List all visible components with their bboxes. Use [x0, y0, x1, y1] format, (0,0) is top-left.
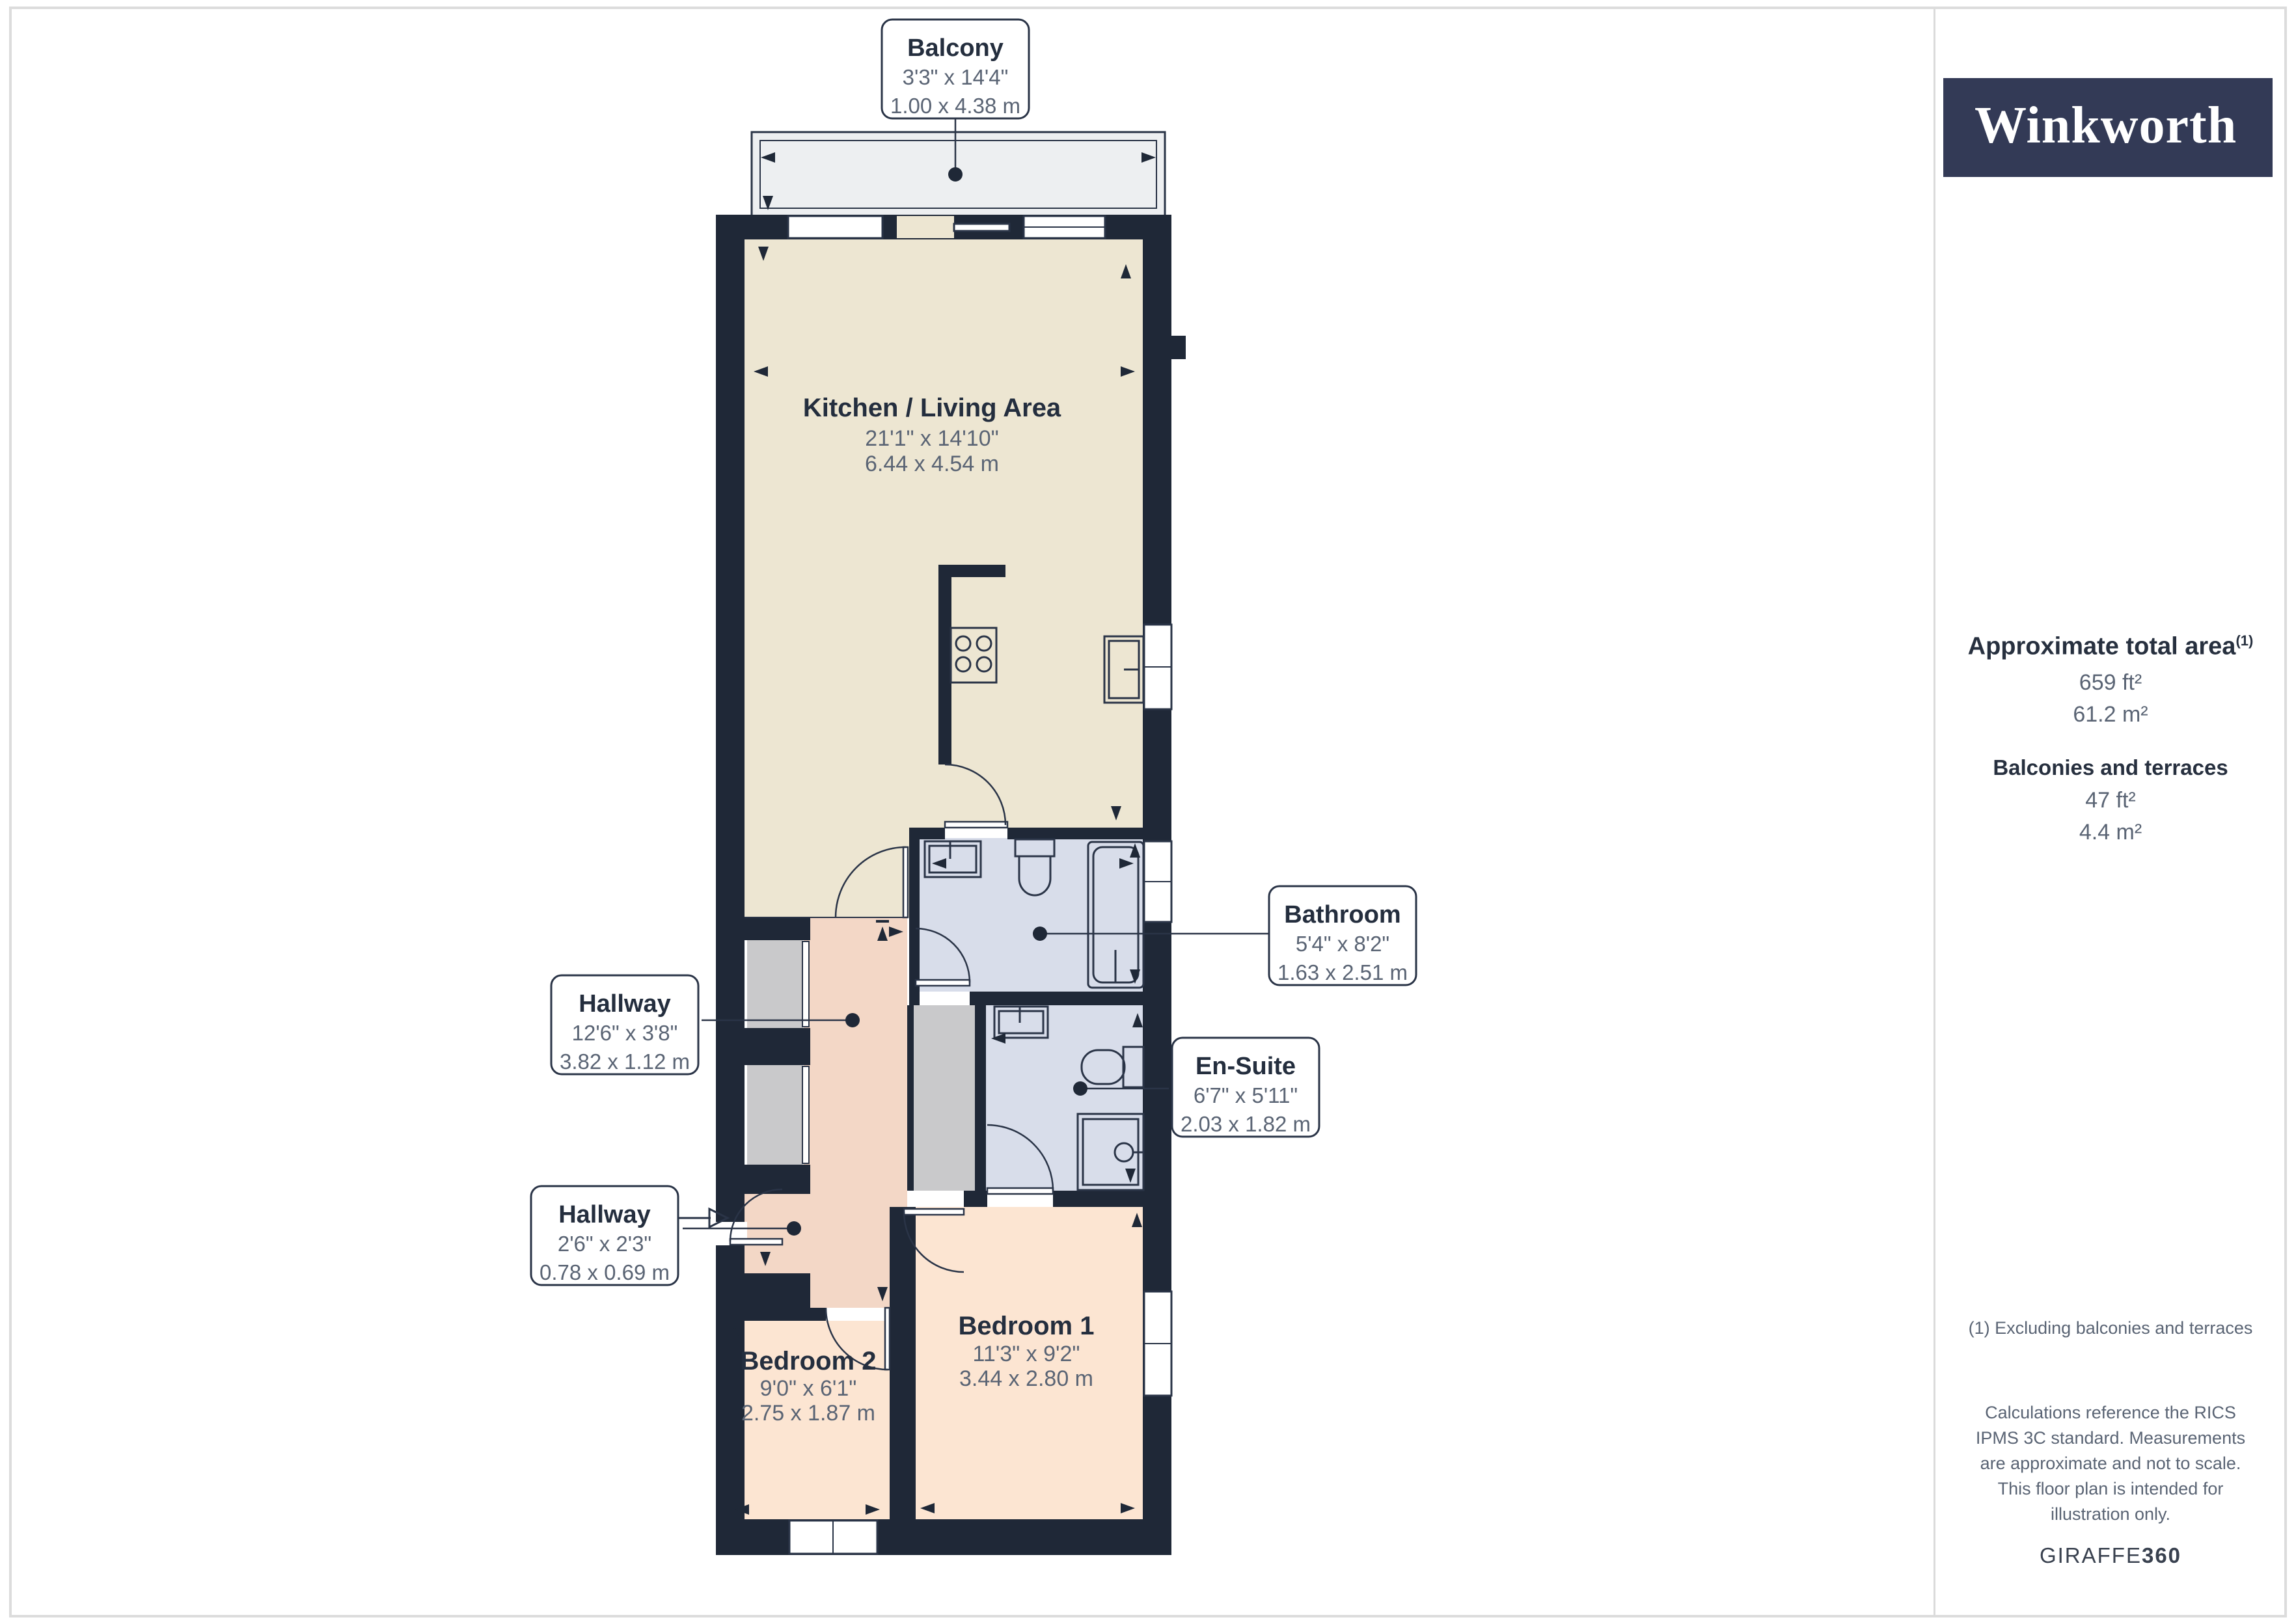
closet-front-1	[802, 941, 809, 1027]
bathroom-callout: Bathroom 5'4" x 8'2" 1.63 x 2.51 m	[1269, 886, 1416, 985]
footnote-marker: (1)	[2235, 632, 2253, 649]
kitchen-window-top-left	[788, 216, 882, 238]
total-area-imperial: 659 ft²	[1934, 670, 2287, 702]
area-summary: Approximate total area(1) 659 ft² 61.2 m…	[1934, 632, 2287, 852]
credit-brand: GIRAFFE	[2040, 1543, 2142, 1567]
balconies-metric: 4.4 m²	[1934, 820, 2287, 852]
svg-text:1.63 x 2.51 m: 1.63 x 2.51 m	[1278, 960, 1408, 984]
svg-text:En-Suite: En-Suite	[1196, 1053, 1296, 1080]
bedroom1-dim-imperial: 11'3" x 9'2"	[972, 1342, 1080, 1366]
bathroom-floor	[920, 838, 1143, 992]
svg-text:3.82 x 1.12 m: 3.82 x 1.12 m	[560, 1049, 690, 1074]
svg-text:12'6" x 3'8": 12'6" x 3'8"	[572, 1021, 678, 1045]
ensuite-callout: En-Suite 6'7" x 5'11" 2.03 x 1.82 m	[1172, 1038, 1319, 1137]
bedroom2-dim-metric: 2.75 x 1.87 m	[741, 1401, 875, 1426]
svg-text:0.78 x 0.69 m: 0.78 x 0.69 m	[540, 1260, 670, 1284]
balconies-imperial: 47 ft²	[1934, 788, 2287, 820]
svg-text:2'6" x 2'3": 2'6" x 2'3"	[558, 1232, 651, 1256]
svg-text:1.00 x 4.38 m: 1.00 x 4.38 m	[890, 94, 1020, 118]
svg-text:Bathroom: Bathroom	[1284, 901, 1401, 928]
total-area-metric: 61.2 m²	[1934, 702, 2287, 734]
logo-text: Winkworth	[1943, 78, 2273, 156]
svg-text:Hallway: Hallway	[579, 990, 671, 1018]
svg-text:3'3" x 14'4": 3'3" x 14'4"	[903, 65, 1009, 89]
closet-front-2	[802, 1066, 809, 1163]
bedroom2-dim-imperial: 9'0" x 6'1"	[760, 1376, 857, 1401]
bedroom1-dim-metric: 3.44 x 2.80 m	[959, 1366, 1093, 1391]
closet-left-2	[747, 1065, 802, 1165]
closet-mid	[914, 1005, 975, 1191]
kitchen-label: Kitchen / Living Area	[803, 394, 1061, 422]
total-area-title: Approximate total area(1)	[1934, 632, 2287, 670]
svg-text:5'4" x 8'2": 5'4" x 8'2"	[1296, 932, 1389, 956]
kitchen-dim-metric: 6.44 x 4.54 m	[865, 452, 999, 476]
bedroom1-label: Bedroom 1	[959, 1312, 1095, 1340]
balcony-slider-opening	[897, 216, 954, 238]
sidebar: Winkworth Approximate total area(1) 659 …	[1934, 0, 2287, 1624]
balcony-callout: Balcony 3'3" x 14'4" 1.00 x 4.38 m	[882, 20, 1029, 118]
excluding-footnote: (1) Excluding balconies and terraces	[1934, 1318, 2287, 1338]
floorplan-page: Kitchen / Living Area 21'1" x 14'10" 6.4…	[0, 0, 2296, 1624]
svg-text:2.03 x 1.82 m: 2.03 x 1.82 m	[1181, 1112, 1311, 1136]
svg-text:Balcony: Balcony	[907, 34, 1004, 62]
giraffe360-credit: GIRAFFE360	[1934, 1543, 2287, 1568]
entry-hallway-callout: Hallway 2'6" x 2'3" 0.78 x 0.69 m	[531, 1186, 678, 1285]
kitchen-dim-imperial: 21'1" x 14'10"	[865, 426, 998, 451]
balconies-title: Balconies and terraces	[1934, 755, 2287, 788]
disclaimer-text: Calculations reference the RICS IPMS 3C …	[1967, 1400, 2254, 1527]
hallway-callout: Hallway 12'6" x 3'8" 3.82 x 1.12 m	[551, 975, 698, 1074]
svg-text:6'7" x 5'11": 6'7" x 5'11"	[1194, 1083, 1298, 1107]
credit-suffix: 360	[2142, 1543, 2181, 1567]
balcony-slider-leaf	[954, 224, 1009, 231]
closet-left-1	[747, 940, 802, 1028]
svg-text:Hallway: Hallway	[558, 1201, 651, 1228]
bedroom2-label: Bedroom 2	[741, 1347, 877, 1375]
winkworth-logo: Winkworth	[1943, 78, 2273, 177]
